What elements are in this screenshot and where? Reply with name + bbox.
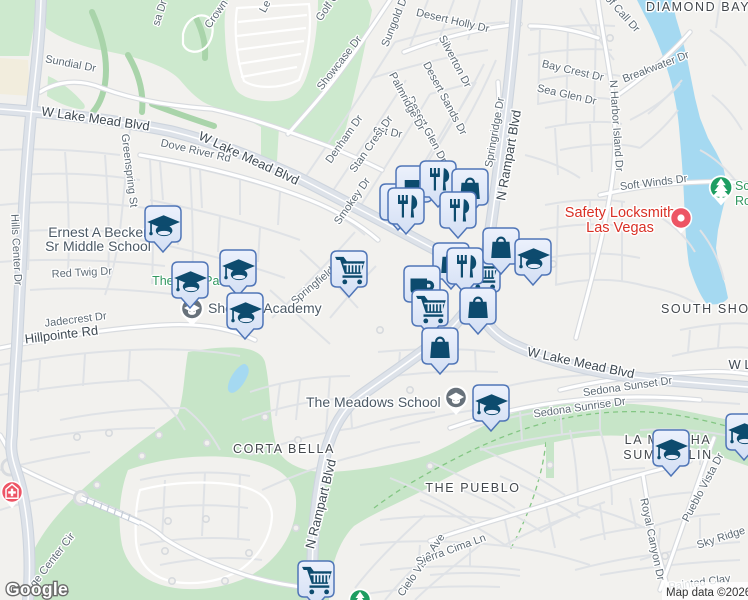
svg-text:Sr Middle School: Sr Middle School <box>45 238 151 254</box>
svg-text:The Meadows School: The Meadows School <box>306 394 441 410</box>
svg-text:Safety Locksmith: Safety Locksmith <box>565 205 675 221</box>
svg-text:Shenker Academy: Shenker Academy <box>208 300 322 316</box>
svg-text:CORTA BELLA: CORTA BELLA <box>233 442 335 456</box>
svg-text:THE PUEBLO: THE PUEBLO <box>425 481 520 495</box>
svg-text:SOUTH SHORES: SOUTH SHORES <box>661 302 748 316</box>
svg-text:W L: W L <box>728 357 748 372</box>
svg-text:DIAMOND BAY: DIAMOND BAY <box>646 0 748 14</box>
svg-text:Ro: Ro <box>735 194 748 208</box>
svg-text:Sc: Sc <box>735 179 748 193</box>
svg-text:Map data ©2026: Map data ©2026 <box>666 587 748 599</box>
svg-text:Las Vegas: Las Vegas <box>586 220 654 236</box>
svg-text:Google: Google <box>6 579 68 599</box>
